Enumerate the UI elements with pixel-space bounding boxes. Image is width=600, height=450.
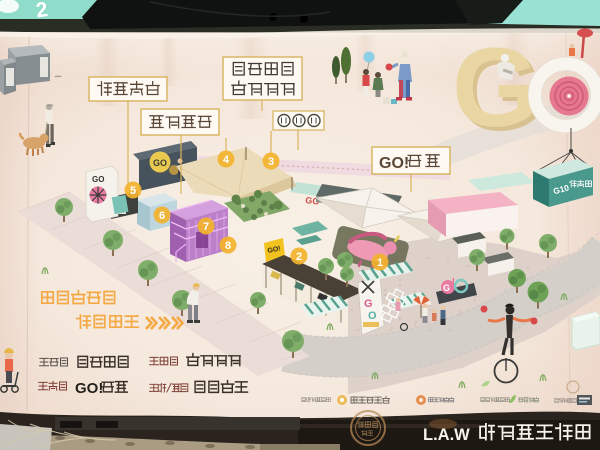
svg-text:7: 7 <box>203 221 209 233</box>
svg-text:L.A.W: L.A.W <box>423 426 470 444</box>
svg-text:GO!: GO! <box>75 380 103 397</box>
svg-text:GO!: GO! <box>379 155 409 172</box>
svg-text:O: O <box>368 310 377 322</box>
svg-text:4: 4 <box>223 154 230 166</box>
svg-text:2: 2 <box>296 251 302 263</box>
svg-text:5: 5 <box>130 185 136 197</box>
svg-text:!: ! <box>452 277 455 286</box>
svg-text:6: 6 <box>159 210 165 222</box>
svg-text:GO: GO <box>153 158 167 168</box>
svg-text:8: 8 <box>225 240 231 252</box>
svg-text:G: G <box>364 298 373 310</box>
svg-text:G: G <box>452 25 539 150</box>
svg-text:3: 3 <box>268 156 274 168</box>
svg-text:G: G <box>443 283 450 293</box>
svg-text:GO: GO <box>92 175 104 184</box>
svg-text:1: 1 <box>377 257 383 269</box>
